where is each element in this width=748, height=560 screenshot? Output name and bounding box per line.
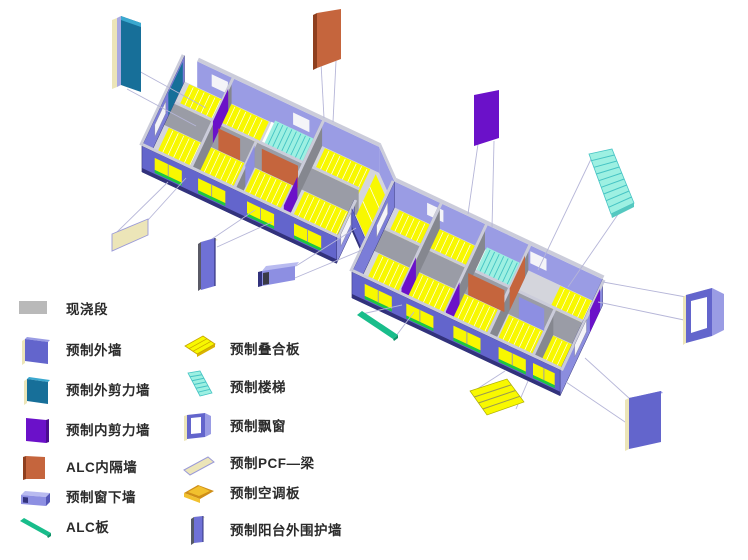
legend-item-label: ALC内隔墙 (66, 456, 137, 476)
exterior-shear-wall-icon (14, 371, 56, 407)
legend-item-precast-stair: 预制楼梯 (178, 368, 286, 404)
legend-item-label: 预制窗下墙 (66, 486, 136, 506)
legend-item-precast-exterior-shear-wall: 预制外剪力墙 (14, 371, 150, 407)
component-exterior-wall-panel (625, 391, 663, 451)
component-bay-window (683, 288, 724, 345)
legend-item-label: 预制空调板 (230, 482, 300, 502)
component-balcony-enclosure-wall (198, 238, 218, 291)
legend-item-label: 现浇段 (66, 298, 108, 318)
component-precast-stair (589, 149, 634, 218)
component-interior-shear-wall-panel (474, 90, 499, 146)
legend-item-label: 预制楼梯 (230, 376, 286, 396)
exterior-wall-icon (14, 331, 56, 367)
legend-item-label: 预制飘窗 (230, 415, 286, 435)
balcony-enclosure-wall-icon (178, 511, 220, 547)
legend-item-precast-balcony-enclosure-wall: 预制阳台外围护墙 (178, 511, 342, 547)
prefab-component-axon-diagram: 现浇段 预制外墙 预制外剪力墙 预制内剪力墙 (0, 0, 748, 560)
legend-item-label: 预制阳台外围护墙 (230, 519, 342, 539)
component-exterior-shear-wall-panel (112, 16, 141, 92)
legend-item-label: 预制PCF—梁 (230, 452, 315, 472)
interior-shear-wall-icon (14, 411, 56, 447)
legend-item-label: ALC板 (66, 516, 109, 536)
legend-item-precast-bay-window: 预制飘窗 (178, 407, 286, 443)
legend-item-precast-exterior-wall: 预制外墙 (14, 331, 122, 367)
cast-segment-icon (14, 290, 56, 326)
legend-item-label: 预制外墙 (66, 339, 122, 359)
legend-item-label: 预制外剪力墙 (66, 379, 150, 399)
building-left-wing (139, 54, 380, 263)
composite-slab-icon (178, 330, 220, 366)
legend-item-label: 预制叠合板 (230, 338, 300, 358)
stair-icon (178, 368, 220, 404)
building-right-wing (349, 178, 605, 396)
component-composite-slab (470, 379, 524, 415)
component-alc-partition-panel (313, 9, 341, 70)
component-pcf-beam (112, 219, 148, 251)
legend-item-precast-composite-slab: 预制叠合板 (178, 330, 300, 366)
alc-panel-icon (14, 508, 56, 544)
legend-item-precast-interior-shear-wall: 预制内剪力墙 (14, 411, 150, 447)
legend-item-precast-ac-slab: 预制空调板 (178, 474, 300, 510)
component-window-sill-wall (258, 262, 299, 287)
ac-slab-icon (178, 474, 220, 510)
legend-item-alc-panel: ALC板 (14, 508, 109, 544)
legend-item-cast-segment: 现浇段 (14, 290, 108, 326)
bay-window-icon (178, 407, 220, 443)
legend-item-label: 预制内剪力墙 (66, 419, 150, 439)
